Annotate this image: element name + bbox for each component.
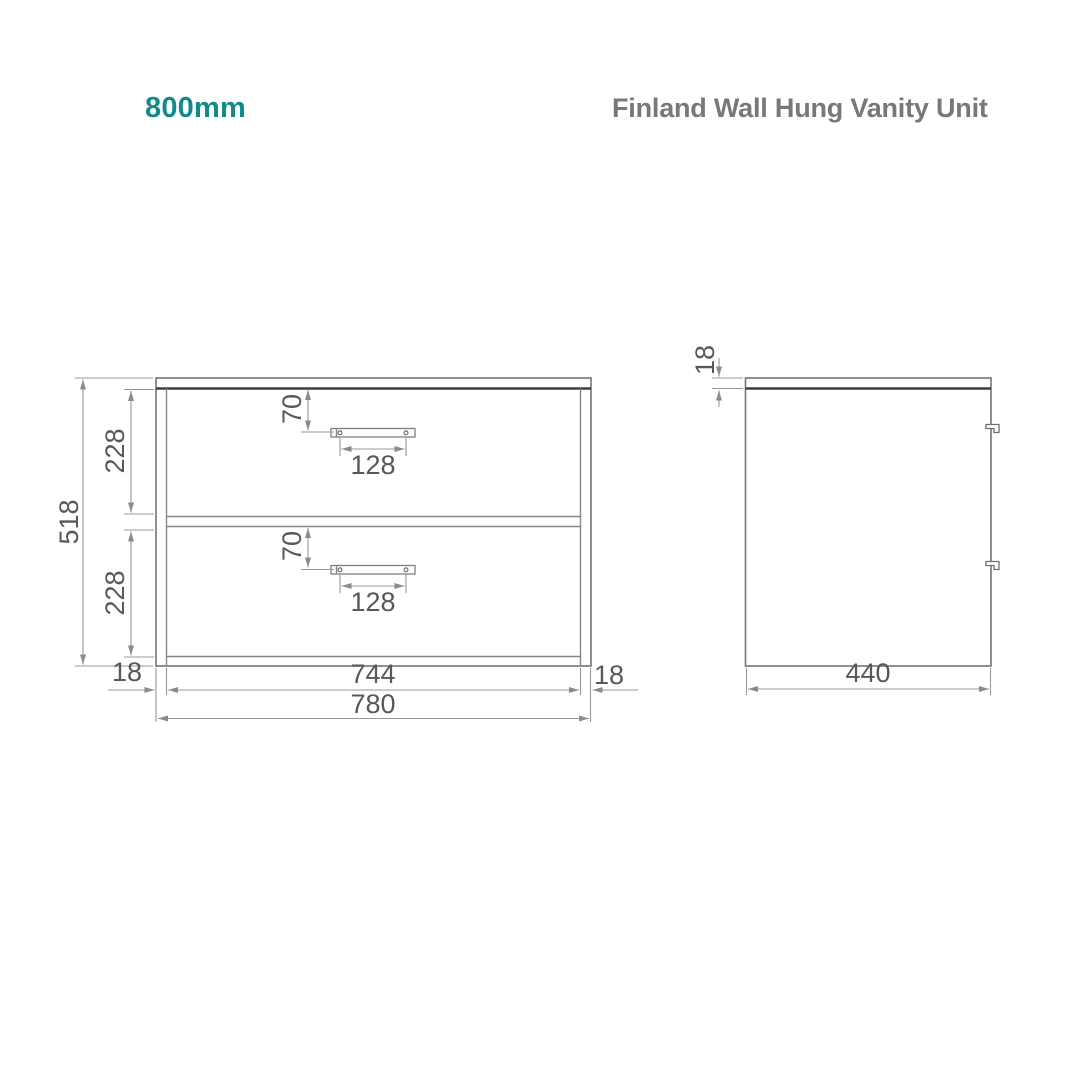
dim-overall-height: 518 <box>54 378 153 666</box>
dim-worktop-thickness: 18 <box>690 345 743 407</box>
dim-label-128-bottom: 128 <box>350 587 395 617</box>
dim-label-70-top: 70 <box>277 394 307 424</box>
drawer-handle-bottom <box>331 566 415 575</box>
dim-top-drawer-height: 228 <box>100 390 154 515</box>
dim-label-440: 440 <box>845 658 890 688</box>
front-cabinet-outline <box>156 378 591 666</box>
dim-label-18-left: 18 <box>112 657 142 687</box>
technical-drawing: 518 228 228 70 70 <box>0 0 1080 1080</box>
dim-label-128-top: 128 <box>350 450 395 480</box>
dim-label-70-bottom: 70 <box>277 531 307 561</box>
dim-label-780: 780 <box>350 689 395 719</box>
dim-label-18-side: 18 <box>690 345 720 375</box>
handle-screw <box>338 568 342 572</box>
dim-label-228-bottom: 228 <box>100 570 130 615</box>
drawer-handle-top <box>331 429 415 438</box>
handle-screw <box>404 568 408 572</box>
dim-label-228-top: 228 <box>100 428 130 473</box>
dim-label-18-right: 18 <box>594 660 624 690</box>
front-view: 518 228 228 70 70 <box>54 378 638 722</box>
dim-label-744: 744 <box>350 659 395 689</box>
dim-bottom-drawer-height: 228 <box>100 530 154 657</box>
side-cabinet-outline <box>746 378 992 666</box>
handle-screw <box>404 431 408 435</box>
side-view: 18 440 <box>690 345 999 695</box>
dim-label-518: 518 <box>54 499 84 544</box>
handle-screw <box>338 431 342 435</box>
